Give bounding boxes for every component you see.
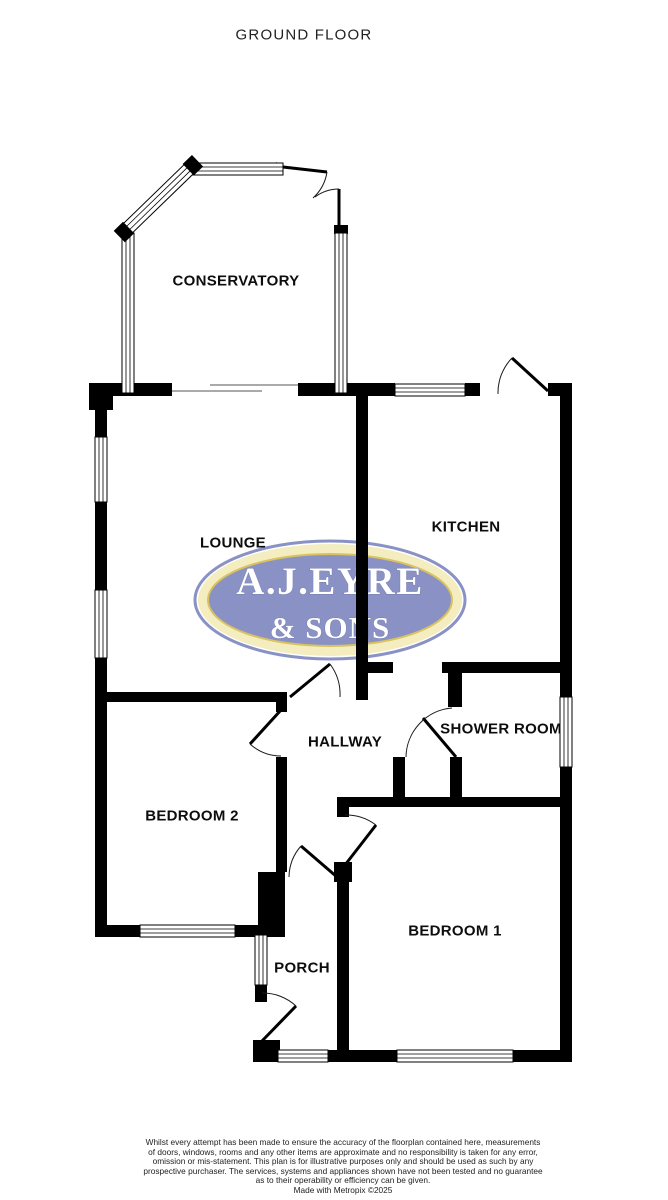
room-label-hallway: HALLWAY (308, 734, 382, 751)
logo-line1: A.J.EYRE (236, 560, 424, 603)
room-label-bedroom2: BEDROOM 2 (145, 808, 239, 825)
window-box (119, 160, 198, 237)
agency-logo: A.J.EYRE & SONS (195, 541, 465, 659)
logo-line2: & SONS (270, 610, 391, 645)
room-label-kitchen: KITCHEN (432, 519, 501, 536)
floorplan-page: GROUND FLOOR A.J.EYRE & SONS (0, 0, 668, 1200)
opening-lines (172, 385, 298, 391)
metropix-credit: Made with Metropix ©2025 (63, 1186, 623, 1196)
room-label-conservatory: CONSERVATORY (173, 273, 300, 290)
window-angled (114, 155, 203, 242)
room-label-lounge: LOUNGE (200, 535, 266, 552)
room-label-shower-room: SHOWER ROOM (440, 721, 562, 738)
floorplan-drawing: A.J.EYRE & SONS (0, 0, 668, 1200)
room-label-porch: PORCH (274, 960, 330, 977)
disclaimer: Whilst every attempt has been made to en… (63, 1138, 623, 1196)
room-label-bedroom1: BEDROOM 1 (408, 923, 502, 940)
